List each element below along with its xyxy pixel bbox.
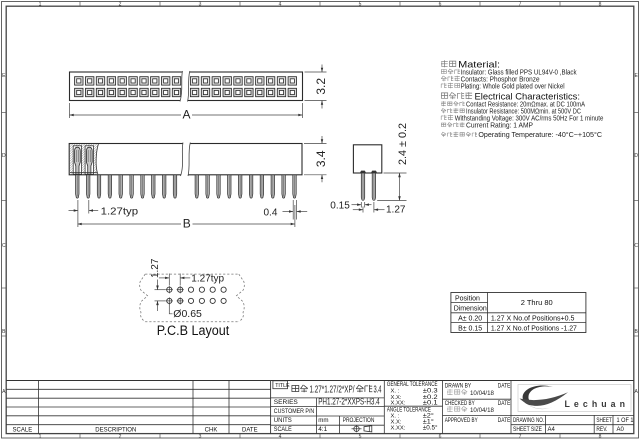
svg-text:4: 4 (279, 434, 282, 440)
svg-text:2 Thru 80: 2 Thru 80 (521, 298, 553, 307)
svg-text:Insulator Resistance: 500MΩmin: Insulator Resistance: 500MΩmin. at 500V … (466, 109, 581, 116)
svg-text:X.X:: X.X: (391, 419, 402, 425)
svg-text:SERIES: SERIES (274, 399, 298, 406)
svg-text:0.4: 0.4 (264, 207, 278, 218)
svg-text:3.2: 3.2 (314, 78, 328, 95)
svg-text:DATE: DATE (498, 383, 511, 389)
svg-text:UNITS: UNITS (274, 417, 292, 424)
svg-text:PH1.27-2*XXPS-H3.4: PH1.27-2*XXPS-H3.4 (318, 396, 380, 406)
svg-text:DATE: DATE (242, 427, 258, 433)
svg-text:A: A (182, 107, 190, 121)
svg-text:X.XX:: X.XX: (391, 426, 406, 432)
svg-text:7: 7 (519, 434, 522, 440)
svg-text:1.27*1.27/2*XP/: 1.27*1.27/2*XP/ (310, 384, 355, 395)
svg-text:Dimension: Dimension (454, 306, 487, 313)
svg-text:PROJECTION: PROJECTION (343, 417, 375, 424)
svg-text:DATE: DATE (498, 418, 511, 424)
svg-text:DRAWING NO.: DRAWING NO. (513, 418, 544, 424)
svg-text:DRAWN BY: DRAWN BY (445, 383, 472, 389)
svg-text:C: C (634, 243, 638, 249)
svg-text:0.15: 0.15 (330, 201, 350, 212)
svg-text:1.27: 1.27 (386, 205, 406, 216)
svg-text:SHEET SIZE: SHEET SIZE (513, 427, 542, 433)
svg-text:X.XX:: X.XX: (391, 400, 406, 406)
svg-text:Ø0.65: Ø0.65 (173, 308, 202, 320)
svg-text:P.C.B Layout: P.C.B Layout (157, 323, 230, 338)
svg-text:REV.: REV. (596, 427, 607, 433)
svg-text:APPROVED BY: APPROVED BY (445, 418, 478, 424)
svg-text:Withstanding Voltage: 300V AC/: Withstanding Voltage: 300V AC/rms 50Hz F… (455, 116, 604, 123)
svg-text:SHEET: SHEET (596, 418, 612, 424)
svg-text:X. :: X. : (391, 389, 400, 395)
svg-text:1.27 X No.of Positions -1.27: 1.27 X No.of Positions -1.27 (491, 323, 577, 332)
svg-text:6: 6 (439, 434, 442, 440)
svg-text:1.27: 1.27 (150, 258, 161, 278)
svg-text:Contact Resistance: 20mΩmax. a: Contact Resistance: 20mΩmax. at DC 100mA (466, 102, 585, 109)
svg-text:DATE: DATE (498, 401, 511, 407)
svg-text:CHK: CHK (205, 427, 218, 433)
svg-text:6: 6 (439, 1, 442, 7)
svg-text:3: 3 (199, 434, 202, 440)
svg-text:1.27typ: 1.27typ (101, 206, 139, 217)
svg-text:10/04/18: 10/04/18 (470, 407, 494, 414)
svg-text:SCALE: SCALE (13, 427, 33, 433)
svg-text:mm: mm (318, 417, 328, 424)
svg-text:3.4: 3.4 (314, 150, 328, 167)
svg-text:CHECKED BY: CHECKED BY (445, 401, 475, 407)
svg-text:D: D (2, 153, 6, 159)
svg-text:2.4 ± 0.2: 2.4 ± 0.2 (397, 123, 409, 165)
svg-text:Position: Position (455, 295, 480, 302)
svg-text:Plating: Whole Gold plated ov: Plating: Whole Gold plated over Nickel (461, 84, 565, 91)
svg-text:2: 2 (119, 1, 122, 7)
svg-text:DESCRIPTION: DESCRIPTION (95, 427, 136, 433)
svg-text:C: C (2, 243, 6, 249)
svg-text:±0.5°: ±0.5° (423, 424, 438, 432)
svg-text:2: 2 (119, 434, 122, 440)
svg-text:B± 0.15: B± 0.15 (458, 325, 482, 332)
svg-text:Operating Temperature: -40°C~+: Operating Temperature: -40°C~+105°C (478, 131, 602, 139)
svg-text:8: 8 (599, 434, 602, 440)
svg-text:3: 3 (199, 1, 202, 7)
svg-text:1: 1 (39, 434, 42, 440)
svg-text:8: 8 (599, 1, 602, 7)
svg-text:1: 1 (39, 1, 42, 7)
svg-text:7: 7 (519, 1, 522, 7)
svg-text:10/04/18: 10/04/18 (470, 390, 494, 397)
svg-text:TITLE: TITLE (275, 383, 290, 389)
svg-text:1.27 X No.of Positions+0.5: 1.27 X No.of Positions+0.5 (491, 313, 575, 322)
svg-text:A0: A0 (617, 427, 625, 433)
svg-text:1.27typ: 1.27typ (191, 274, 224, 285)
svg-text:5: 5 (359, 1, 362, 7)
svg-text:CUSTOMER P/N: CUSTOMER P/N (274, 408, 314, 415)
svg-text:D: D (634, 153, 638, 159)
svg-text:4: 4 (279, 1, 282, 7)
svg-text:4:1: 4:1 (318, 426, 327, 433)
svg-text:B: B (183, 216, 191, 230)
svg-text:Contacts: Phosphor Bronze: Contacts: Phosphor Bronze (461, 77, 540, 84)
svg-text:SCALE: SCALE (274, 426, 292, 433)
svg-text:±0.1: ±0.1 (423, 399, 438, 406)
svg-text:Current Rating: 1 AMP: Current Rating: 1 AMP (466, 123, 533, 130)
svg-text:A4: A4 (548, 427, 556, 433)
svg-text:1 OF 1: 1 OF 1 (617, 418, 635, 424)
svg-text:A± 0.20: A± 0.20 (458, 315, 482, 322)
svg-text:5: 5 (359, 434, 362, 440)
svg-text:3.4: 3.4 (374, 384, 382, 395)
